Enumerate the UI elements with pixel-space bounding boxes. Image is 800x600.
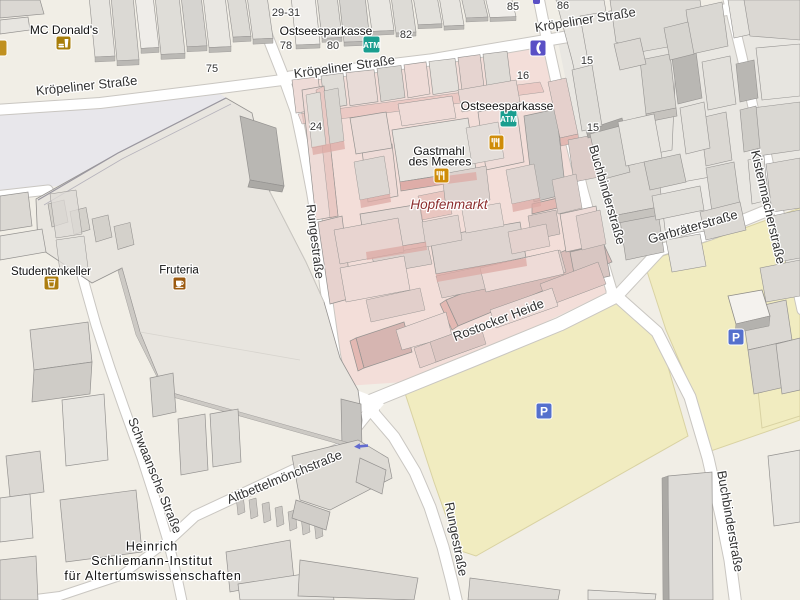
svg-text:P: P (540, 405, 548, 419)
svg-text:29-31: 29-31 (272, 7, 300, 19)
svg-text:78: 78 (280, 40, 292, 52)
svg-text:80: 80 (327, 40, 339, 52)
svg-text:Schliemann-Institut: Schliemann-Institut (91, 554, 213, 568)
svg-text:86: 86 (557, 0, 569, 12)
svg-text:82: 82 (400, 29, 412, 41)
svg-text:ATM: ATM (363, 41, 380, 50)
svg-text:75: 75 (206, 63, 218, 75)
svg-text:ATM: ATM (500, 115, 517, 124)
svg-text:MC Donald's: MC Donald's (30, 23, 98, 37)
svg-text:des Meeres: des Meeres (409, 155, 472, 169)
svg-text:Studentenkeller: Studentenkeller (11, 266, 91, 278)
svg-text:15: 15 (581, 55, 593, 67)
svg-text:Ostseesparkasse: Ostseesparkasse (280, 24, 373, 38)
svg-text:Heinrich: Heinrich (126, 540, 178, 554)
svg-text:85: 85 (507, 1, 519, 13)
svg-text:15: 15 (587, 122, 599, 134)
svg-text:24: 24 (310, 121, 322, 133)
svg-text:für Altertumswissenschaften: für Altertumswissenschaften (64, 569, 241, 583)
svg-text:Ostseesparkasse: Ostseesparkasse (461, 99, 554, 113)
svg-text:Hopfenmarkt: Hopfenmarkt (410, 197, 489, 212)
svg-text:Fruteria: Fruteria (159, 265, 199, 277)
svg-text:16: 16 (517, 70, 529, 82)
svg-text:P: P (732, 331, 740, 345)
